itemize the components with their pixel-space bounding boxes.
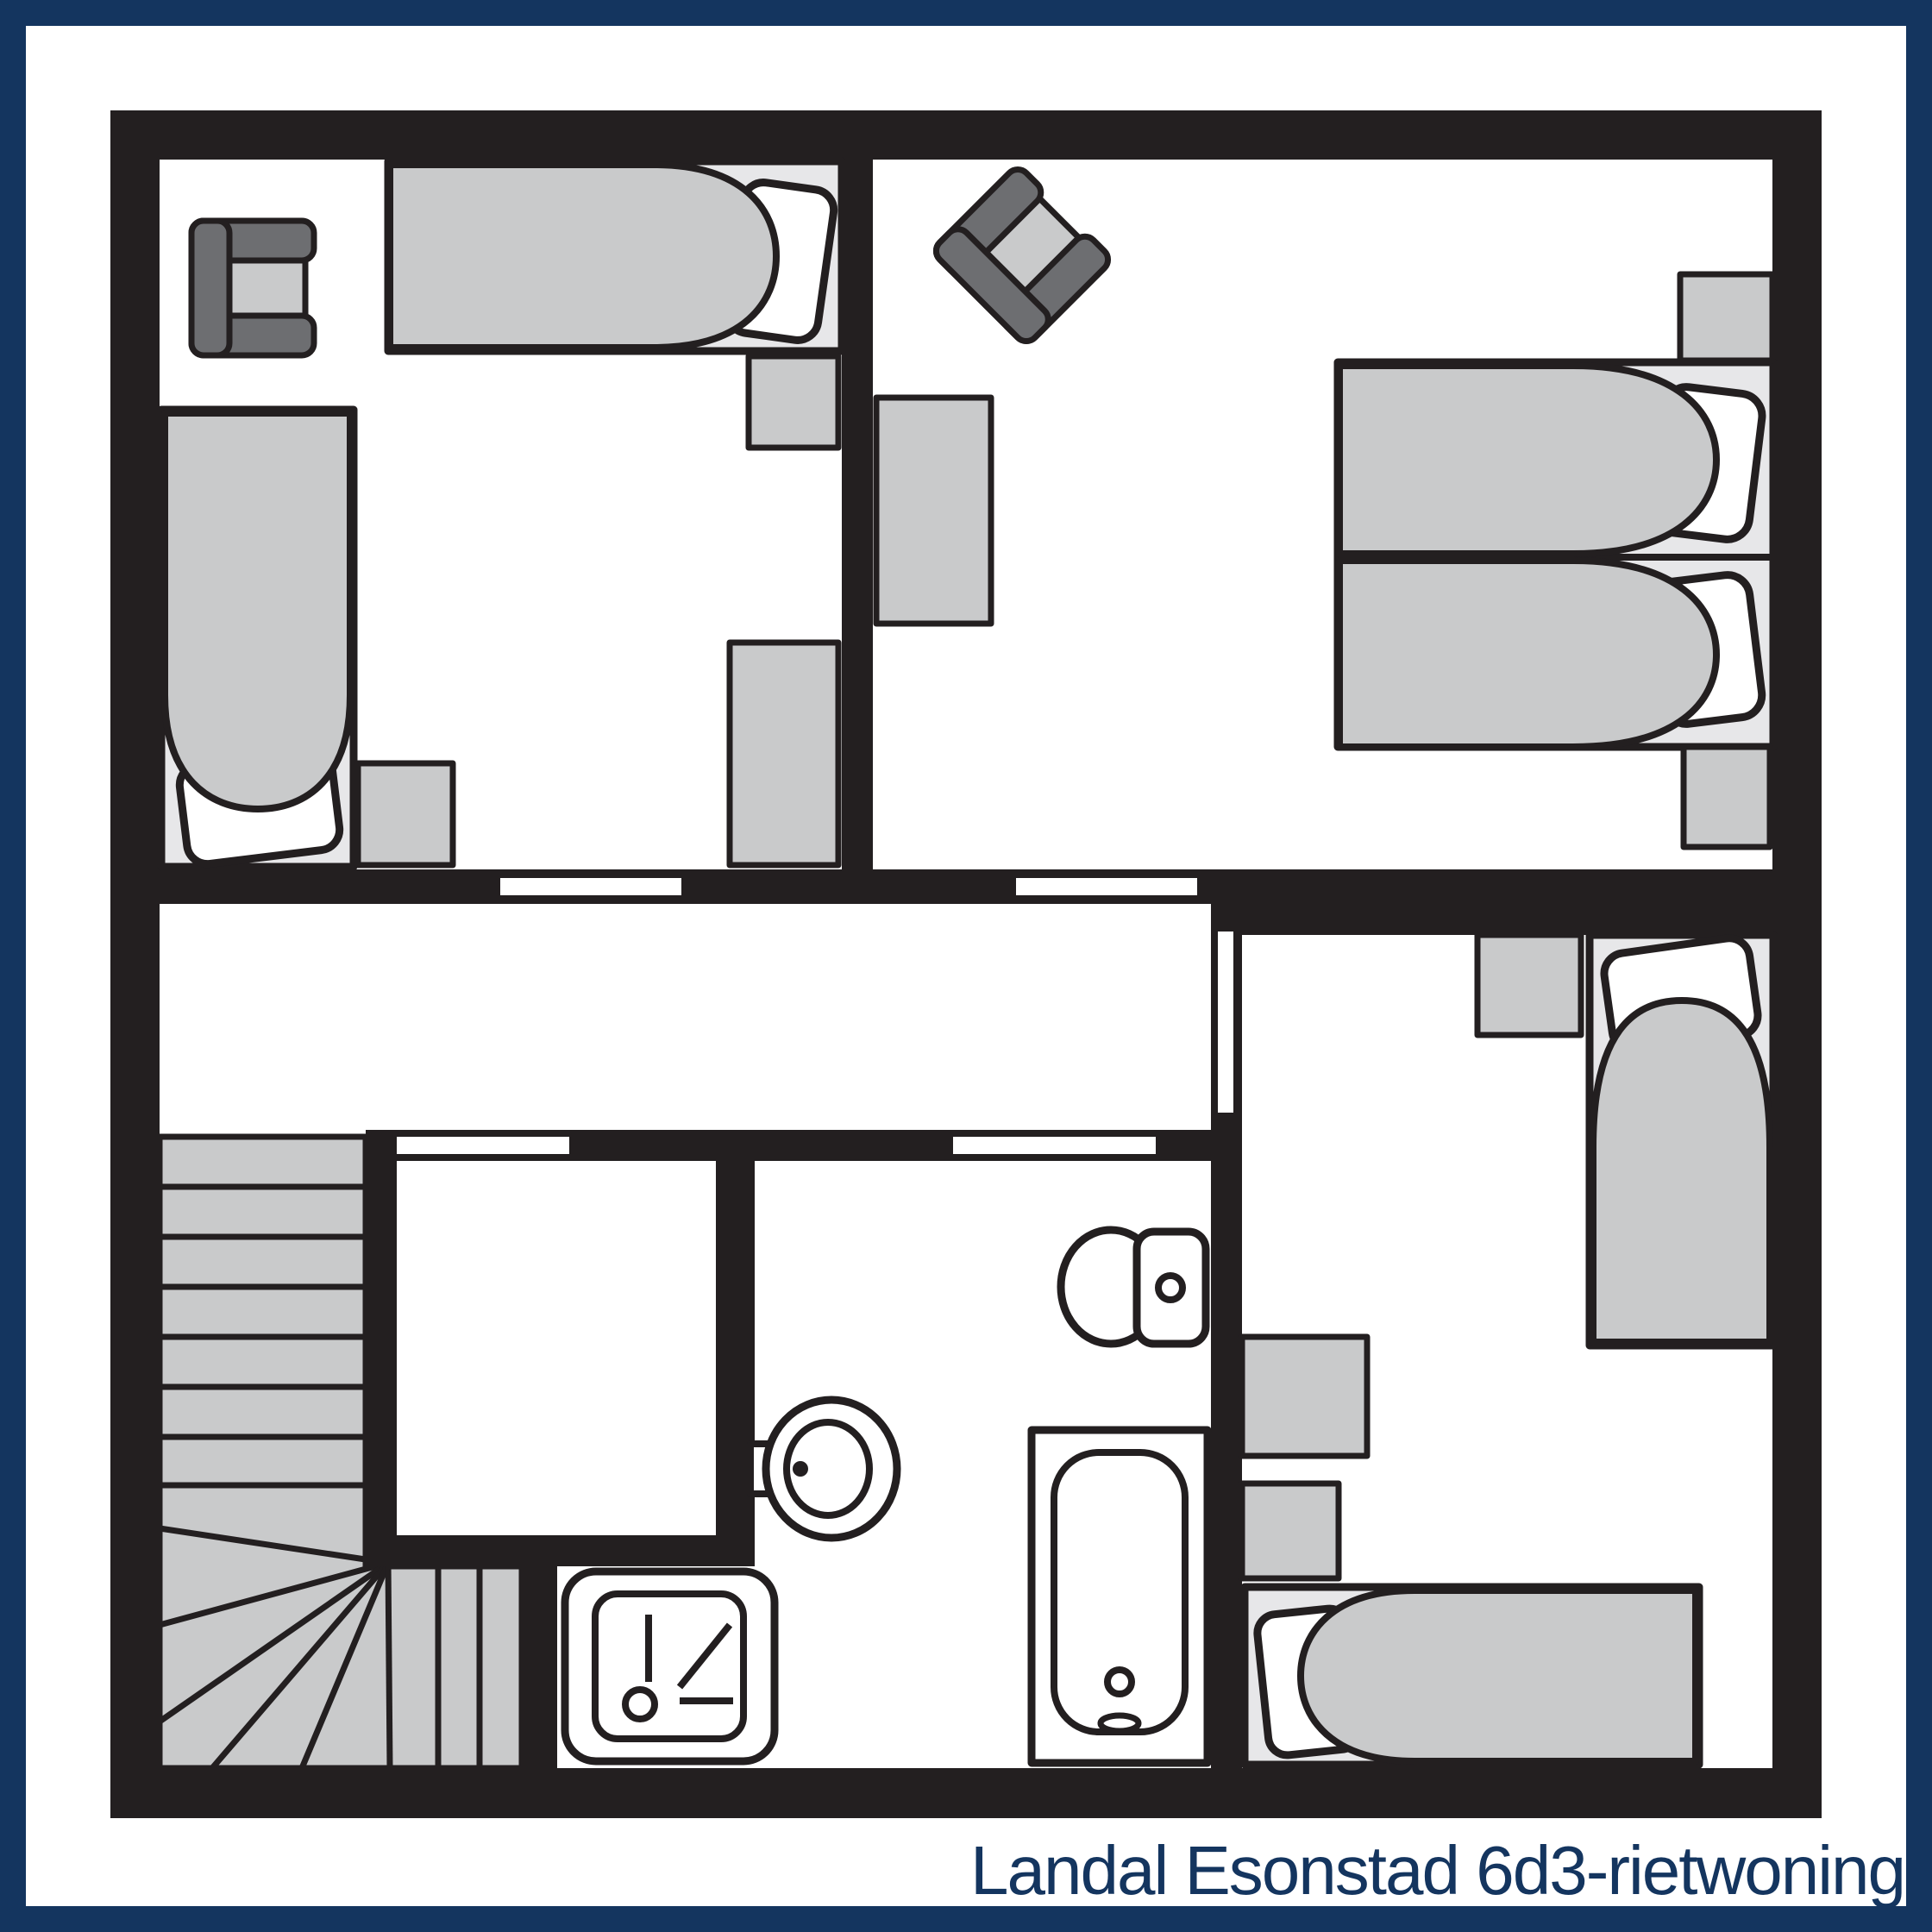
- door-bathroom: [953, 1137, 1156, 1154]
- wardrobe: [730, 643, 838, 865]
- armchair: [191, 221, 314, 355]
- single-bed: [161, 410, 354, 867]
- bathtub: [1032, 1430, 1207, 1763]
- single-bed: [1590, 935, 1773, 1345]
- floor-plan-svg: Landal Esonstad 6d3-rietwoning: [0, 0, 1932, 1932]
- nightstand: [1242, 1337, 1367, 1456]
- nightstand: [1242, 1483, 1339, 1578]
- floor-plan-page: Landal Esonstad 6d3-rietwoning: [0, 0, 1932, 1932]
- nightstand: [1684, 747, 1770, 847]
- door-bedroom-topleft: [500, 878, 681, 895]
- nightstand: [1680, 274, 1772, 361]
- caption: Landal Esonstad 6d3-rietwoning: [970, 1832, 1904, 1909]
- dresser: [876, 398, 991, 624]
- door-bedroom-topright: [1016, 878, 1197, 895]
- nightstand: [1477, 935, 1581, 1035]
- single-bed: [388, 161, 842, 351]
- door-bedroom-right: [1218, 931, 1233, 1113]
- nightstand: [358, 763, 453, 865]
- nightstand: [749, 356, 838, 448]
- double-bed: [1338, 362, 1773, 747]
- single-bed: [1245, 1587, 1699, 1765]
- door-closet: [397, 1137, 569, 1154]
- shower: [565, 1571, 775, 1761]
- toilet: [1061, 1230, 1206, 1344]
